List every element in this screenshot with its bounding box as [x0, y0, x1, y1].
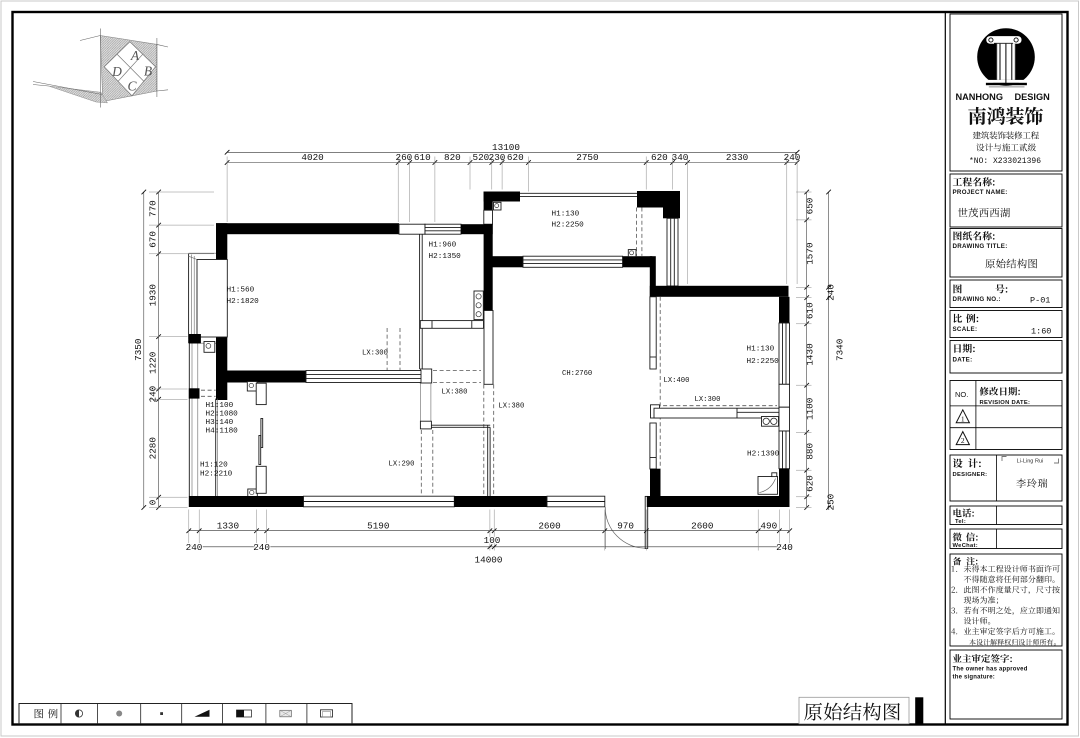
svg-text:B: B — [144, 64, 152, 79]
svg-text:The owner has approved: The owner has approved — [953, 667, 1028, 673]
svg-text:670: 670 — [148, 231, 159, 248]
svg-text:240: 240 — [253, 542, 270, 553]
svg-text:H2:2250: H2:2250 — [747, 358, 780, 366]
svg-text:LX:300: LX:300 — [695, 396, 721, 404]
svg-text:2600: 2600 — [691, 520, 713, 531]
svg-text:13100: 13100 — [492, 142, 520, 153]
svg-text:H4:1180: H4:1180 — [206, 428, 239, 436]
svg-text:the signature:: the signature: — [953, 675, 995, 681]
svg-text:D: D — [111, 64, 122, 79]
svg-text:*NO: X233021396: *NO: X233021396 — [969, 157, 1041, 166]
svg-text:1:60: 1:60 — [1031, 327, 1051, 337]
svg-text:5190: 5190 — [367, 520, 389, 531]
svg-text:770: 770 — [148, 200, 159, 217]
svg-text:1100: 1100 — [805, 398, 816, 420]
svg-text:2600: 2600 — [538, 520, 560, 531]
svg-text:240: 240 — [148, 386, 159, 403]
svg-text:1220: 1220 — [148, 352, 159, 374]
svg-text:2: 2 — [961, 436, 965, 445]
svg-text:970: 970 — [617, 520, 634, 531]
svg-text:LX:290: LX:290 — [389, 461, 415, 469]
svg-text:DRAWING TITLE:: DRAWING TITLE: — [953, 243, 1008, 250]
svg-text:REVISION DATE:: REVISION DATE: — [980, 400, 1031, 406]
svg-text:DESIGN: DESIGN — [1015, 92, 1051, 102]
svg-text:610: 610 — [805, 302, 816, 319]
svg-text:610: 610 — [414, 152, 431, 163]
svg-text:260: 260 — [396, 152, 413, 163]
svg-text:H1:960: H1:960 — [429, 242, 457, 250]
svg-text:650: 650 — [805, 198, 816, 215]
svg-text:SCALE:: SCALE: — [953, 326, 978, 333]
svg-text:620: 620 — [507, 152, 524, 163]
svg-text:LX:380: LX:380 — [442, 389, 468, 397]
svg-text:H1:120: H1:120 — [200, 462, 228, 470]
svg-text:7350: 7350 — [133, 339, 144, 361]
svg-text:240: 240 — [186, 542, 203, 553]
svg-text:250: 250 — [826, 494, 837, 511]
svg-text:H2:1390: H2:1390 — [747, 451, 780, 459]
svg-text:H2:2210: H2:2210 — [200, 471, 233, 479]
svg-text:DATE:: DATE: — [953, 357, 973, 364]
svg-text:340: 340 — [672, 152, 689, 163]
svg-text:H1:130: H1:130 — [552, 211, 580, 219]
svg-text:820: 820 — [444, 152, 461, 163]
svg-text:2280: 2280 — [148, 437, 159, 459]
svg-text:P-01: P-01 — [1030, 296, 1050, 306]
svg-text:620: 620 — [805, 475, 816, 492]
svg-text:230: 230 — [489, 152, 506, 163]
svg-text:4020: 4020 — [301, 152, 323, 163]
svg-text:240: 240 — [776, 542, 793, 553]
svg-text:1570: 1570 — [805, 242, 816, 264]
svg-text:0: 0 — [148, 500, 159, 506]
svg-text:2750: 2750 — [576, 152, 598, 163]
svg-text:DRAWING NO.:: DRAWING NO.: — [953, 296, 1001, 303]
svg-text:100: 100 — [484, 535, 501, 546]
svg-text:H2:1080: H2:1080 — [206, 411, 239, 419]
svg-text:CH:2760: CH:2760 — [562, 370, 592, 378]
svg-text:WeChat:: WeChat: — [953, 543, 979, 549]
svg-text:H1:560: H1:560 — [227, 287, 255, 295]
svg-text:1: 1 — [961, 414, 965, 423]
svg-text:C: C — [127, 79, 137, 94]
svg-text:LX:380: LX:380 — [498, 403, 524, 411]
svg-text:7340: 7340 — [835, 339, 846, 361]
svg-text:H1:130: H1:130 — [747, 346, 775, 354]
svg-text:880: 880 — [805, 443, 816, 460]
svg-text:H3:140: H3:140 — [206, 419, 234, 427]
svg-text:LX:400: LX:400 — [664, 377, 690, 385]
svg-text:1930: 1930 — [148, 284, 159, 306]
svg-text:H2:1820: H2:1820 — [227, 298, 260, 306]
svg-text:14000: 14000 — [475, 555, 503, 566]
svg-text:H1:100: H1:100 — [206, 402, 234, 410]
svg-text:A: A — [130, 48, 140, 63]
svg-text:2330: 2330 — [726, 152, 748, 163]
svg-text:1330: 1330 — [217, 520, 239, 531]
svg-text:620: 620 — [651, 152, 668, 163]
svg-text:NANHONG: NANHONG — [956, 92, 1003, 102]
svg-text:240: 240 — [784, 152, 801, 163]
svg-text:Tel:: Tel: — [955, 519, 966, 525]
svg-text:1430: 1430 — [805, 343, 816, 365]
svg-text:H2:1350: H2:1350 — [429, 253, 462, 261]
svg-text:LX:300: LX:300 — [362, 350, 388, 358]
svg-text:PROJECT NAME:: PROJECT NAME: — [953, 189, 1008, 196]
svg-text:DESIGNER:: DESIGNER: — [953, 472, 988, 478]
svg-text:490: 490 — [760, 520, 777, 531]
svg-text:Li-Ling Rui: Li-Ling Rui — [1017, 459, 1044, 465]
svg-text:520: 520 — [473, 152, 490, 163]
svg-text:H2:2250: H2:2250 — [552, 222, 585, 230]
svg-text:240: 240 — [826, 284, 837, 301]
svg-text:NO.: NO. — [955, 390, 968, 399]
